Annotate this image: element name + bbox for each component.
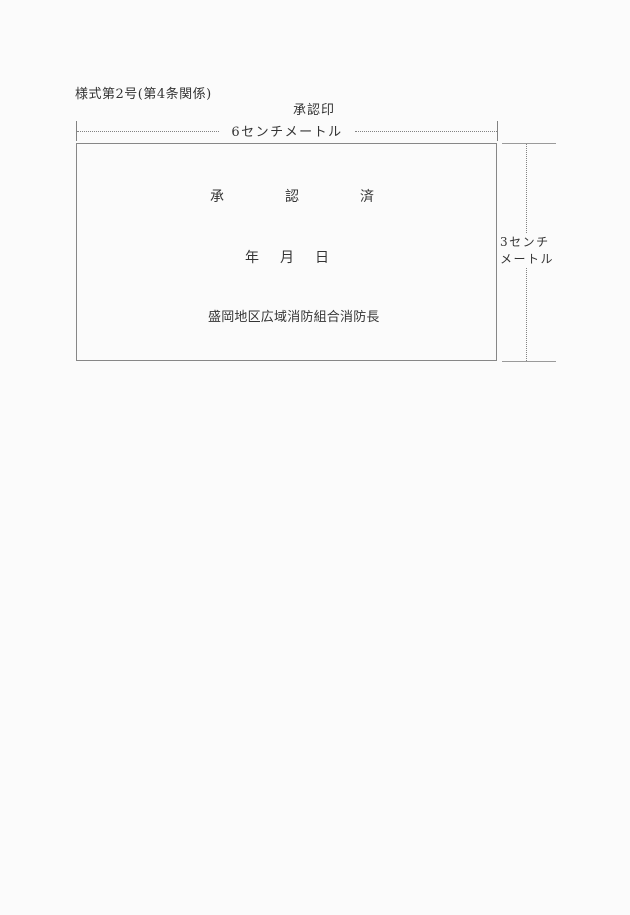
height-measure-cap-top <box>502 143 556 144</box>
approval-char-1: 承 <box>210 186 224 206</box>
approval-stamp-box: 承 認 済 年 月 日 盛岡地区広域消防組合消防長 <box>76 143 497 361</box>
approval-char-3: 済 <box>360 186 374 206</box>
height-measurement-label-line2: メートル <box>500 251 556 268</box>
width-measurement: 6センチメートル <box>76 121 498 141</box>
height-measure-cap-bottom <box>502 361 556 362</box>
month-label: 月 <box>280 247 294 267</box>
stamp-caption: 承認印 <box>293 99 335 118</box>
organization-name: 盛岡地区広域消防組合消防長 <box>208 306 380 325</box>
width-measure-dotted-line-right <box>355 131 497 132</box>
approval-char-2: 認 <box>285 186 299 206</box>
day-label: 日 <box>315 247 329 267</box>
form-number-label: 様式第2号(第4条関係) <box>75 83 212 102</box>
width-measure-tick-right <box>497 121 498 141</box>
width-measure-dotted-line-left <box>77 131 219 132</box>
height-measurement-label-line1: 3センチ <box>500 234 556 251</box>
height-measurement-label: 3センチ メートル <box>500 234 556 268</box>
date-row: 年 月 日 <box>245 247 329 267</box>
document-page: 様式第2号(第4条関係) 承認印 6センチメートル 承 認 済 年 月 日 盛岡… <box>0 0 630 915</box>
width-measurement-label: 6センチメートル <box>219 121 354 140</box>
year-label: 年 <box>245 247 259 267</box>
approval-status-row: 承 認 済 <box>210 186 374 206</box>
